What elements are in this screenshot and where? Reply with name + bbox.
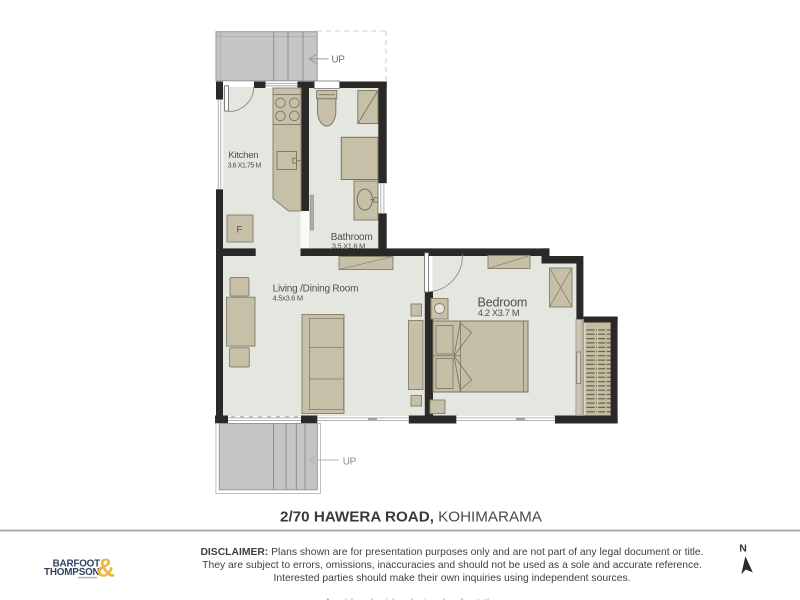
svg-text:Kitchen: Kitchen: [228, 150, 258, 161]
svg-text:F: F: [237, 225, 243, 236]
svg-text:&: &: [97, 555, 115, 583]
svg-text:DISCLAIMER: Plans shown are fo: DISCLAIMER: Plans shown are for presenta…: [200, 547, 703, 558]
svg-text:Auckland wide choice bar: Auckland wide choice barfoot thompson: [324, 596, 536, 600]
svg-text:Interested parties should make: Interested parties should make their own…: [273, 573, 630, 584]
svg-text:4.2 X3.7 M: 4.2 X3.7 M: [478, 308, 519, 318]
svg-text:2/70 HAWERA ROAD, KOHIMARAMA: 2/70 HAWERA ROAD, KOHIMARAMA: [280, 509, 543, 526]
svg-text:Bedroom: Bedroom: [478, 295, 528, 309]
svg-text:They are subject to errors, om: They are subject to errors, omissions, i…: [202, 560, 702, 571]
svg-text:THOMPSON: THOMPSON: [44, 567, 100, 578]
svg-text:4.5x3.6 M: 4.5x3.6 M: [273, 293, 303, 302]
svg-text:UP: UP: [343, 456, 357, 467]
svg-text:3.5 X1.6 M: 3.5 X1.6 M: [332, 242, 365, 251]
svg-text:N: N: [739, 543, 747, 555]
svg-text:3.6 X1.75 M: 3.6 X1.75 M: [228, 161, 262, 170]
svg-text:UP: UP: [331, 54, 345, 65]
